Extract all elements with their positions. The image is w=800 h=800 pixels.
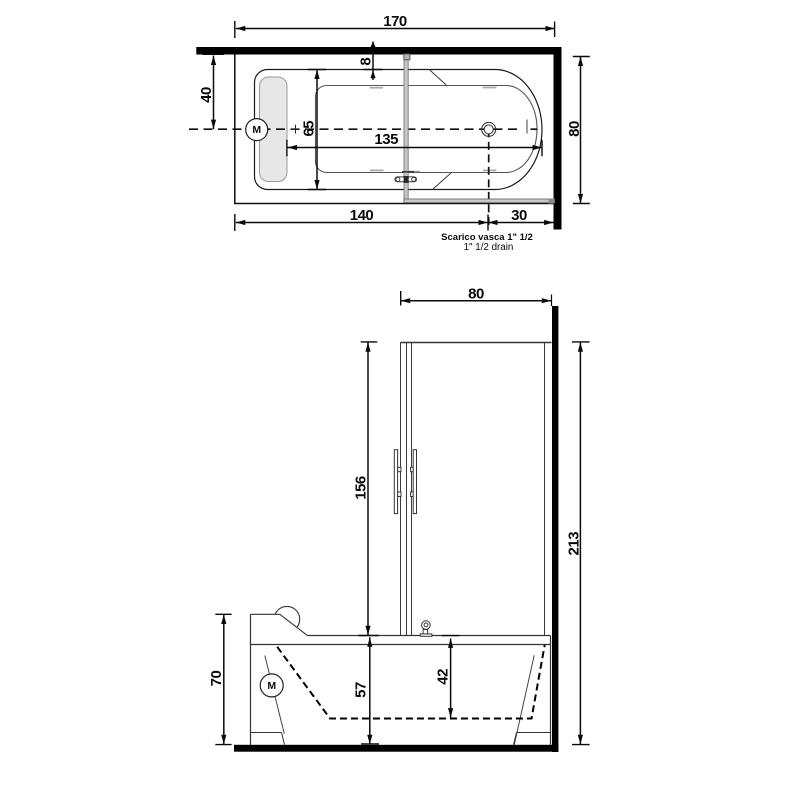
- svg-text:140: 140: [350, 207, 374, 224]
- svg-text:80: 80: [566, 121, 583, 137]
- svg-text:135: 135: [374, 131, 398, 148]
- svg-text:156: 156: [352, 476, 369, 500]
- svg-text:30: 30: [511, 207, 527, 224]
- svg-text:213: 213: [565, 532, 582, 556]
- svg-text:M: M: [267, 680, 276, 692]
- svg-text:8: 8: [358, 57, 375, 65]
- svg-text:42: 42: [435, 669, 452, 685]
- svg-text:1" 1/2 drain: 1" 1/2 drain: [464, 242, 514, 253]
- svg-text:65: 65: [301, 121, 318, 137]
- svg-text:80: 80: [468, 286, 484, 303]
- svg-text:170: 170: [383, 13, 407, 30]
- svg-text:70: 70: [208, 671, 225, 687]
- svg-text:M: M: [252, 124, 261, 136]
- svg-text:57: 57: [352, 682, 369, 698]
- svg-text:40: 40: [198, 87, 215, 103]
